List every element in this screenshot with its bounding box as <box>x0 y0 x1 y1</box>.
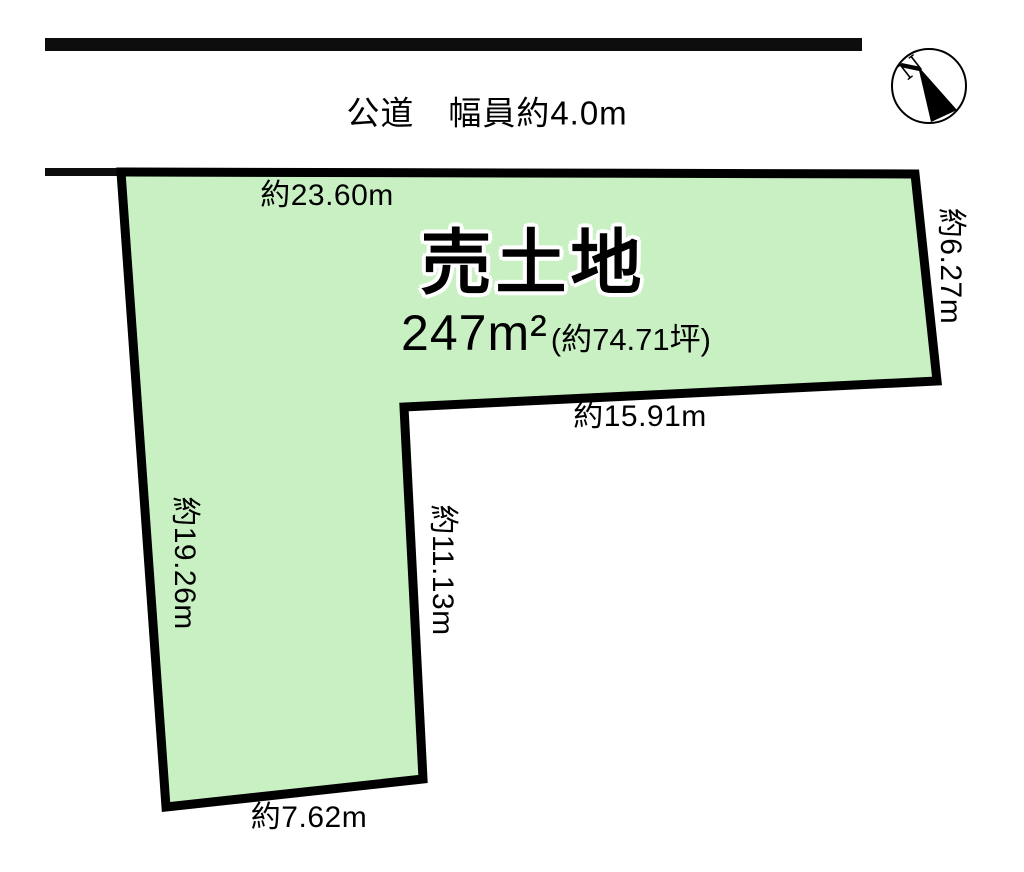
dimension-left: 約19.26m <box>169 496 199 630</box>
dimension-right: 約6.27m <box>935 208 965 324</box>
plot-area-tsubo: (約74.71坪) <box>551 314 711 359</box>
dimension-top: 約23.60m <box>260 181 394 211</box>
road-upper-edge-line <box>45 38 862 51</box>
plot-area: 247m² (約74.71坪) <box>401 304 711 362</box>
dimension-inner-vertical: 約11.13m <box>427 504 457 635</box>
plot-area-sqm: 247m² <box>401 304 548 362</box>
dimension-middle: 約15.91m <box>573 402 707 432</box>
road-width-label: 公道 幅員約4.0m <box>346 97 627 130</box>
dimension-bottom: 約7.62m <box>251 803 367 833</box>
compass: N <box>892 49 966 123</box>
plot-title: 売土地 <box>420 229 645 300</box>
land-diagram: N 公道 幅員約4.0m 売土地 247m² (約74.71坪) 約23.60m… <box>0 0 1024 872</box>
